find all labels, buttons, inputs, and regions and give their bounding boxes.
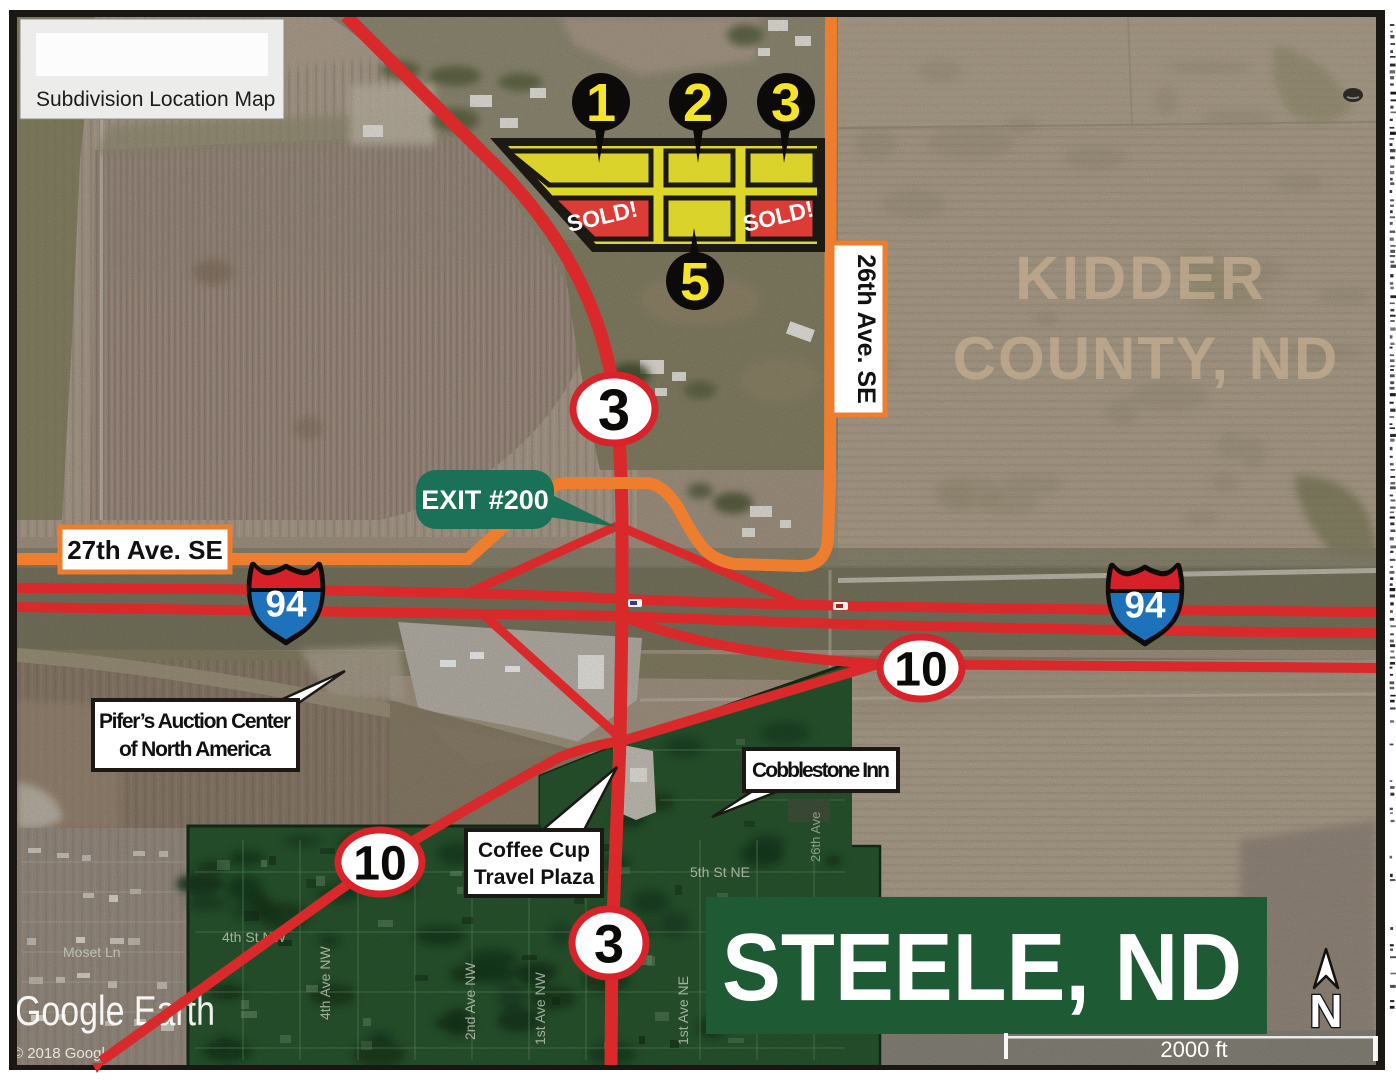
- svg-text:Cobblestone Inn: Cobblestone Inn: [752, 759, 890, 782]
- svg-text:2nd Ave NW: 2nd Ave NW: [462, 962, 478, 1040]
- svg-text:10: 10: [353, 837, 406, 890]
- svg-text:3: 3: [594, 914, 624, 974]
- svg-text:2: 2: [683, 73, 713, 133]
- svg-text:of North America: of North America: [119, 738, 271, 761]
- svg-text:Moset Ln: Moset Ln: [63, 944, 121, 960]
- svg-text:5: 5: [680, 252, 710, 312]
- svg-text:Travel Plaza: Travel Plaza: [474, 866, 595, 889]
- svg-text:1st Ave NE: 1st Ave NE: [675, 976, 691, 1045]
- svg-text:3: 3: [598, 378, 630, 443]
- svg-text:1st Ave NW: 1st Ave NW: [532, 971, 548, 1045]
- svg-text:Pifer’s Auction Center: Pifer’s Auction Center: [99, 710, 291, 733]
- svg-text:10: 10: [894, 643, 947, 696]
- svg-text:94: 94: [1124, 585, 1166, 626]
- svg-text:3: 3: [771, 73, 801, 133]
- svg-text:N: N: [1309, 985, 1342, 1037]
- svg-text:© 2018 Google: © 2018 Google: [12, 1045, 113, 1062]
- svg-text:Coffee Cup: Coffee Cup: [478, 839, 590, 862]
- svg-text:COUNTY, ND: COUNTY, ND: [953, 325, 1340, 392]
- svg-text:26th Ave. SE: 26th Ave. SE: [852, 254, 880, 404]
- svg-text:4th Ave NW: 4th Ave NW: [317, 946, 333, 1020]
- svg-text:1: 1: [586, 73, 616, 133]
- svg-text:27th Ave. SE: 27th Ave. SE: [67, 535, 223, 565]
- svg-text:94: 94: [265, 584, 307, 625]
- svg-text:KIDDER: KIDDER: [1015, 244, 1267, 312]
- svg-text:Google Earth: Google Earth: [15, 987, 215, 1034]
- svg-text:26th Ave: 26th Ave: [808, 812, 823, 862]
- svg-text:STEELE, ND: STEELE, ND: [722, 914, 1242, 1021]
- svg-text:Subdivision Location Map: Subdivision Location Map: [36, 88, 275, 111]
- svg-text:EXIT #200: EXIT #200: [421, 485, 549, 515]
- svg-text:5th St NE: 5th St NE: [690, 864, 750, 880]
- svg-text:2000 ft: 2000 ft: [1160, 1037, 1227, 1062]
